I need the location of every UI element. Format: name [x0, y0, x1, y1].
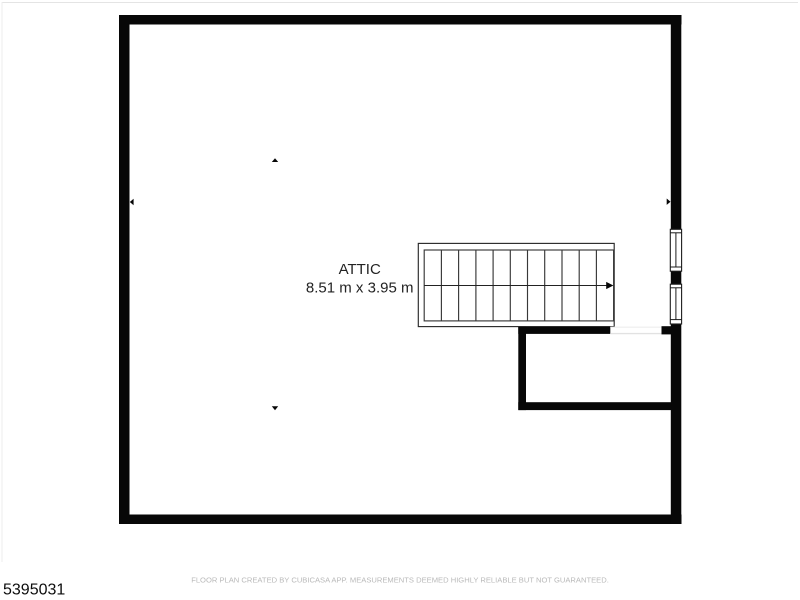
- svg-text:8.51 m x 3.95 m: 8.51 m x 3.95 m: [306, 280, 414, 297]
- svg-text:FLOOR PLAN CREATED BY CUBICASA: FLOOR PLAN CREATED BY CUBICASA APP. MEAS…: [191, 576, 609, 585]
- svg-text:ATTIC: ATTIC: [339, 261, 381, 278]
- svg-text:5395031: 5395031: [3, 582, 65, 599]
